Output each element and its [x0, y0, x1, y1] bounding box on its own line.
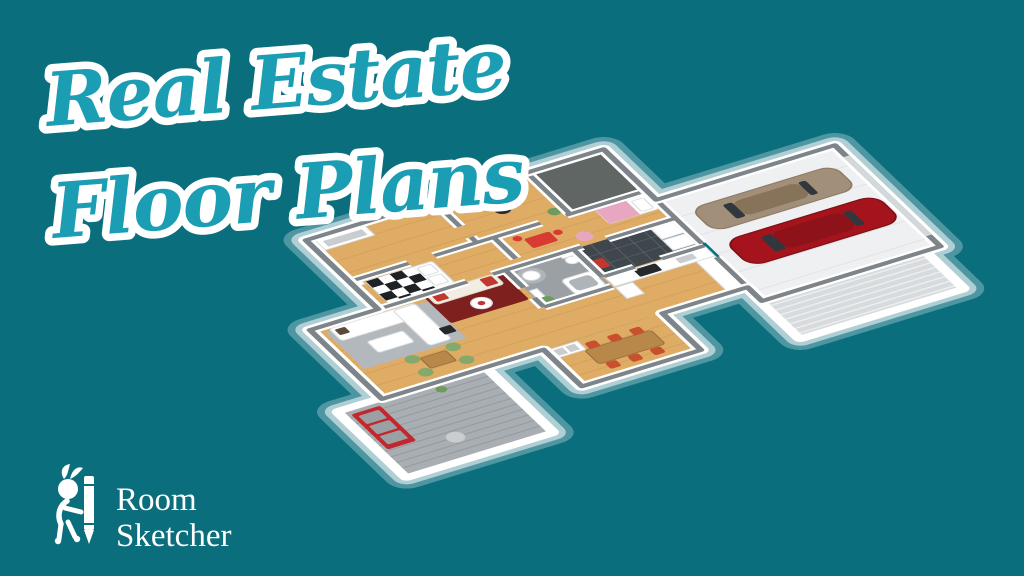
logo-line-1: Room — [116, 482, 197, 518]
promo-banner: Real Estate Floor Plans Room Sketcher — [0, 0, 1024, 576]
logo-line-2: Sketcher — [116, 518, 231, 554]
